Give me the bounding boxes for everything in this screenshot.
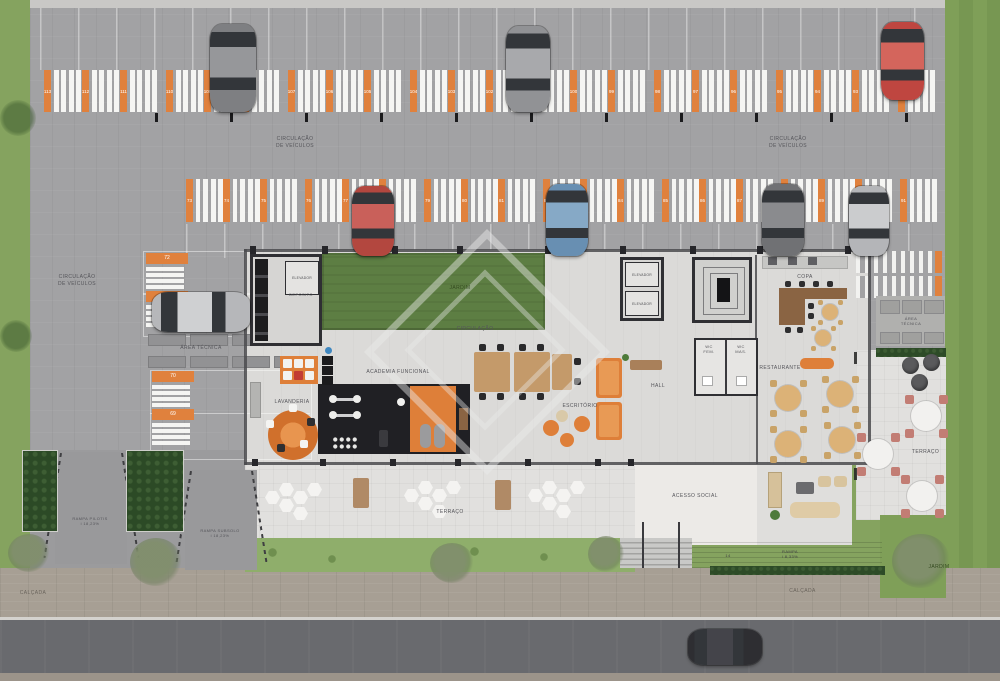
shrub — [268, 548, 277, 557]
appliance — [808, 257, 817, 265]
escritorio-label: ESCRITÓRIO — [550, 403, 610, 410]
structural-column — [250, 246, 256, 254]
structural-column — [525, 459, 531, 466]
parking-spot: 91 — [900, 179, 937, 222]
washing-machine — [283, 359, 292, 368]
chair — [822, 406, 829, 413]
sofa — [790, 502, 840, 518]
washing-machine-red — [294, 371, 303, 380]
exercise-mat — [434, 424, 445, 448]
parking-stripe — [762, 70, 767, 112]
parking-stripe — [564, 70, 569, 112]
parking-spot: 98 — [654, 70, 692, 112]
parking-stripe — [496, 70, 501, 112]
parking-spot: 84 — [617, 179, 654, 222]
parking-stripe — [930, 70, 935, 112]
parking-stripe — [146, 267, 184, 271]
parking-stripe — [146, 285, 184, 289]
area-tecnica-label: ÁREATÉCNICA — [878, 316, 944, 326]
parking-stripe — [747, 70, 752, 112]
parking-stripe — [152, 70, 157, 112]
parking-stripe — [839, 70, 844, 112]
parking-stripe — [92, 70, 97, 112]
parking-stripe — [473, 70, 478, 112]
parking-stripe — [724, 179, 729, 222]
chair — [770, 426, 777, 433]
side-table — [556, 410, 568, 422]
parking-stripe — [69, 70, 74, 112]
handrail — [678, 522, 680, 568]
desk — [552, 354, 572, 390]
jardim-label: JARDIM — [430, 285, 490, 292]
parking-stripe — [130, 70, 135, 112]
column-tick — [830, 113, 833, 122]
parking-stripe — [292, 179, 297, 222]
parking-spot: 100 — [570, 70, 608, 112]
parking-spot: 86 — [699, 179, 736, 222]
parking-stripe — [508, 179, 513, 222]
parking-stripe — [649, 179, 654, 222]
chair — [574, 378, 581, 385]
car-top-view — [506, 26, 550, 112]
chair — [800, 410, 807, 417]
chair — [785, 327, 791, 333]
parking-spot: 74 — [223, 179, 260, 222]
parking-spot: 103 — [448, 70, 486, 112]
parking-stripe — [806, 179, 811, 222]
acesso-social-floor — [635, 465, 757, 545]
washing-machine — [283, 371, 292, 380]
parking-stripe — [557, 70, 562, 112]
parking-stripe — [152, 391, 190, 395]
acesso-social-label: ACESSO SOCIAL — [655, 493, 735, 500]
chair — [838, 300, 843, 305]
parking-stripe — [634, 179, 639, 222]
parking-stripe — [471, 179, 476, 222]
parking-stripe — [259, 70, 264, 112]
parking-spot-number: 113 — [44, 70, 51, 112]
parking-spot: 73 — [186, 179, 223, 222]
parking-stripe — [198, 70, 203, 112]
chair — [799, 281, 805, 287]
structural-column — [320, 459, 326, 466]
parking-spot: 99 — [608, 70, 646, 112]
parking-stripe — [687, 179, 692, 222]
parking-stripe — [240, 179, 245, 222]
parking-spot: 110 — [166, 70, 204, 112]
parking-stripe — [152, 429, 190, 433]
parking-spot-number: 73 — [186, 179, 193, 222]
parking-spot-number: 104 — [410, 70, 417, 112]
parking-stripe — [625, 70, 630, 112]
pouf — [923, 354, 940, 371]
parking-stripe — [523, 179, 528, 222]
tree — [8, 534, 50, 572]
parking-spot: 111 — [120, 70, 158, 112]
jardim-label: JARDIM — [914, 564, 964, 571]
parking-spot-number: 81 — [498, 179, 505, 222]
parking-stripe — [925, 179, 930, 222]
parking-spot: 113 — [44, 70, 82, 112]
parking-spot: 80 — [461, 179, 498, 222]
plyo-box — [459, 408, 468, 430]
equipment-box — [148, 356, 186, 368]
weight-plate — [353, 395, 361, 403]
parking-stripe — [145, 70, 150, 112]
parking-stripe — [374, 70, 379, 112]
parking-stripe — [233, 179, 238, 222]
stairs-acesso — [620, 538, 692, 568]
parking-spot: 112 — [82, 70, 120, 112]
parking-stripe — [835, 179, 840, 222]
tree — [130, 538, 182, 586]
parking-stripe — [274, 70, 279, 112]
chair — [574, 358, 581, 365]
parking-spot: 79 — [424, 179, 461, 222]
parking-stripe — [54, 70, 59, 112]
parking-stripe — [672, 179, 677, 222]
shrub — [328, 555, 336, 563]
column-tick — [155, 113, 158, 122]
rampa-subsolo-label: RAMPA SUBSOLOi 18,23% — [188, 528, 252, 538]
tree — [430, 543, 474, 583]
parking-stripe — [211, 179, 216, 222]
circulacao-veiculos-label: CIRCULAÇÃODE VEÍCULOS — [42, 274, 112, 287]
chair — [537, 344, 544, 351]
wall — [755, 255, 757, 341]
parking-spot-number: 112 — [82, 70, 89, 112]
parking-stripe — [441, 179, 446, 222]
parking-stripe — [152, 423, 190, 427]
parking-stripe — [389, 70, 394, 112]
parking-stripe — [449, 179, 454, 222]
parking-spot: 106 — [326, 70, 364, 112]
parking-spot: 85 — [662, 179, 699, 222]
parking-stripe — [305, 70, 310, 112]
chair — [266, 420, 274, 428]
chair — [811, 326, 816, 331]
wall — [725, 340, 727, 394]
round-table — [911, 401, 941, 431]
parking-stripe — [152, 435, 190, 439]
parking-row-top: 1131121111101091081071061051041031021011… — [44, 70, 936, 112]
parking-bay-lines-top — [40, 8, 940, 70]
academia-label: ACADEMIA FUNCIONAL — [348, 369, 448, 376]
round-table — [775, 385, 801, 411]
parking-spot-number: 84 — [617, 179, 624, 222]
lavanderia-label: LAVANDERIA — [262, 399, 322, 406]
parking-stripe — [843, 179, 848, 222]
parking-stripe — [605, 179, 610, 222]
chair — [854, 422, 861, 429]
structural-column — [690, 246, 696, 254]
gym-cabinet — [322, 356, 333, 365]
parking-spot-number: 85 — [662, 179, 669, 222]
round-table — [815, 330, 831, 346]
parking-stripe — [793, 70, 798, 112]
car-top-view — [546, 184, 588, 256]
parking-stripe — [597, 179, 602, 222]
parking-spot-number: 74 — [223, 179, 230, 222]
parking-spot-number: 69 — [152, 409, 194, 420]
parking-spot-number: 75 — [260, 179, 267, 222]
chair — [891, 433, 900, 442]
parking-spot-number: 111 — [120, 70, 127, 112]
parking-stripe — [183, 70, 188, 112]
parking-stripe — [831, 70, 836, 112]
parking-stripe — [716, 179, 721, 222]
sofa-orange — [596, 358, 622, 398]
parking-spot: 94 — [814, 70, 852, 112]
chair — [808, 313, 814, 319]
wall — [868, 255, 871, 463]
parking-stripe — [203, 179, 208, 222]
chair — [479, 344, 486, 351]
floor-plan-scene: 1131121111101091081071061051041031021011… — [0, 0, 1000, 681]
terraco-label: TERRAÇO — [420, 509, 480, 516]
structural-column — [455, 459, 461, 466]
parking-stripe — [709, 179, 714, 222]
parking-stripe — [267, 70, 272, 112]
chair — [818, 300, 823, 305]
parking-spot-number: 93 — [852, 70, 859, 112]
chair — [797, 327, 803, 333]
weight-plate — [329, 411, 337, 419]
parking-spot-number: 70 — [152, 371, 194, 382]
chair — [852, 376, 859, 383]
chair — [905, 429, 914, 438]
toilet — [736, 376, 747, 386]
exercise-mat — [420, 424, 431, 448]
weight-plate — [353, 411, 361, 419]
parking-stripe — [146, 273, 184, 277]
laundry-shelf — [250, 382, 261, 418]
chair — [537, 393, 544, 400]
chair — [939, 395, 948, 404]
round-table — [829, 427, 855, 453]
parking-stripe — [434, 179, 439, 222]
parking-stripe — [76, 70, 81, 112]
elevator-label: ELEVADOR — [292, 276, 312, 280]
washing-machine — [294, 359, 303, 368]
parking-spot-number: 89 — [818, 179, 825, 222]
parking-spot-number: 98 — [654, 70, 661, 112]
chair — [818, 320, 823, 325]
parking-stripe — [664, 70, 669, 112]
parking-stripe — [381, 70, 386, 112]
parking-stripe — [152, 441, 190, 445]
parking-stripe — [435, 70, 440, 112]
chair — [770, 410, 777, 417]
parking-stripe — [396, 70, 401, 112]
wc-mas-label: WCMAS. — [730, 344, 752, 354]
parking-stripe — [478, 179, 483, 222]
column-tick — [230, 113, 233, 122]
parking-spot-number: 91 — [900, 179, 907, 222]
circulacao-veiculos-label: CIRCULAÇÃODE VEÍCULOS — [255, 136, 335, 149]
parking-stripe — [671, 70, 676, 112]
treadmill — [379, 430, 388, 447]
parking-spot: 105 — [364, 70, 402, 112]
car-top-view — [152, 292, 250, 332]
column-tick — [455, 113, 458, 122]
chair — [519, 393, 526, 400]
slab-top-edge — [30, 0, 945, 8]
parking-stripe — [270, 179, 275, 222]
parking-spot: 95 — [776, 70, 814, 112]
car-top-view — [210, 24, 256, 112]
tree — [892, 534, 950, 588]
chair — [479, 393, 486, 400]
parking-stripe — [917, 179, 922, 222]
chair — [808, 303, 814, 309]
coffee-table — [796, 482, 814, 494]
chair — [300, 440, 308, 448]
circulacao-veiculos-label: CIRCULAÇÃODE VEÍCULOS — [748, 136, 828, 149]
parking-stripe — [480, 70, 485, 112]
wc-fem-label: WCFEM. — [698, 344, 720, 354]
washing-machine — [305, 359, 314, 368]
stair-core — [692, 257, 752, 323]
lounge-shelf — [768, 472, 782, 508]
parking-spot-number: 97 — [692, 70, 699, 112]
grass-field-right — [945, 0, 1000, 600]
parking-stripe — [590, 179, 595, 222]
shrub — [0, 320, 32, 352]
parking-stripe — [61, 70, 66, 112]
chair — [891, 467, 900, 476]
chair — [497, 344, 504, 351]
cabinets — [255, 259, 268, 341]
parking-stripe — [717, 70, 722, 112]
chair — [800, 456, 807, 463]
parking-spot-number: 77 — [342, 179, 349, 222]
parking-stripe — [315, 179, 320, 222]
parking-stripe — [196, 179, 201, 222]
parking-stripe — [808, 70, 813, 112]
structural-column — [595, 459, 601, 466]
parking-spot-number: 103 — [448, 70, 455, 112]
parking-stripe — [404, 179, 409, 222]
parking-spot: 81 — [498, 179, 535, 222]
parking-stripe — [679, 70, 684, 112]
chair — [800, 380, 807, 387]
parking-spot-number: 76 — [305, 179, 312, 222]
column-tick — [380, 113, 383, 122]
calcada-label: CALÇADA — [8, 590, 58, 597]
structural-column — [252, 459, 258, 466]
shrub — [540, 553, 548, 561]
gym-cabinet — [322, 366, 333, 375]
ramp-subsolo — [185, 470, 257, 570]
parking-stripe — [146, 279, 184, 283]
shrub — [0, 100, 36, 136]
parking-stripe — [910, 179, 915, 222]
parking-stripe — [709, 70, 714, 112]
terraco-label: TERRAÇO — [898, 449, 953, 456]
parking-stripe — [679, 179, 684, 222]
parking-stripe — [580, 70, 585, 112]
elevator-cab: ELEVADOR — [625, 262, 659, 287]
parking-spot-number: 110 — [166, 70, 173, 112]
parking-spot-number: 87 — [736, 179, 743, 222]
restaurante-label: RESTAURANTE — [750, 365, 810, 372]
parking-spot-number: 102 — [486, 70, 493, 112]
equipment-box — [880, 332, 900, 344]
structural-column — [322, 246, 328, 254]
chair — [277, 444, 285, 452]
parking-stripe — [285, 179, 290, 222]
parking-spot-number: 72 — [146, 253, 188, 264]
parking-stripe — [248, 179, 253, 222]
column-tick — [905, 113, 908, 122]
parking-stripe — [724, 70, 729, 112]
parking-spot-number: 86 — [699, 179, 706, 222]
parking-stripe — [277, 179, 282, 222]
hedge-row — [710, 566, 885, 575]
parking-spot: 76 — [305, 179, 342, 222]
wall — [244, 249, 247, 465]
pouf-orange — [543, 420, 559, 436]
parking-stripe — [753, 179, 758, 222]
chair — [857, 433, 866, 442]
desk — [514, 352, 550, 392]
washing-machine — [305, 371, 314, 380]
sofa-cushion — [599, 361, 619, 395]
round-table — [822, 304, 838, 320]
hedge-planter — [126, 450, 184, 532]
chair — [827, 281, 833, 287]
column-tick — [755, 113, 758, 122]
parking-stripe — [595, 70, 600, 112]
elevator-label: ELEVADOR — [632, 302, 652, 306]
structural-column — [620, 246, 626, 254]
round-table — [827, 381, 853, 407]
lounge-chair — [834, 476, 847, 487]
parking-stripe — [336, 70, 341, 112]
appliance — [768, 257, 777, 265]
gym-mat-orange — [410, 386, 456, 452]
parking-stripe — [640, 70, 645, 112]
equipment-box — [902, 300, 922, 314]
parking-stripe — [862, 70, 867, 112]
desk — [474, 352, 510, 392]
parking-stripe — [343, 70, 348, 112]
plant — [622, 354, 629, 361]
parking-stripe — [420, 70, 425, 112]
equipment-box — [924, 332, 944, 344]
parking-stripe — [740, 70, 745, 112]
tree — [588, 536, 624, 572]
water-fountain — [325, 347, 332, 354]
elevator-cab: ELEVADOR — [285, 261, 319, 295]
parking-stripe — [642, 179, 647, 222]
parking-stripe — [330, 179, 335, 222]
structural-column — [392, 246, 398, 254]
parking-stripe — [587, 70, 592, 112]
equipment-box — [232, 356, 270, 368]
hall-label: HALL — [638, 383, 678, 390]
chair — [857, 467, 866, 476]
parking-stripe — [99, 70, 104, 112]
chair — [854, 452, 861, 459]
chair — [852, 406, 859, 413]
ramp-pilotis — [55, 452, 127, 564]
copa-table — [779, 299, 805, 325]
column-tick — [530, 113, 533, 122]
lounge-chair — [818, 476, 831, 487]
parking-stripe — [786, 70, 791, 112]
